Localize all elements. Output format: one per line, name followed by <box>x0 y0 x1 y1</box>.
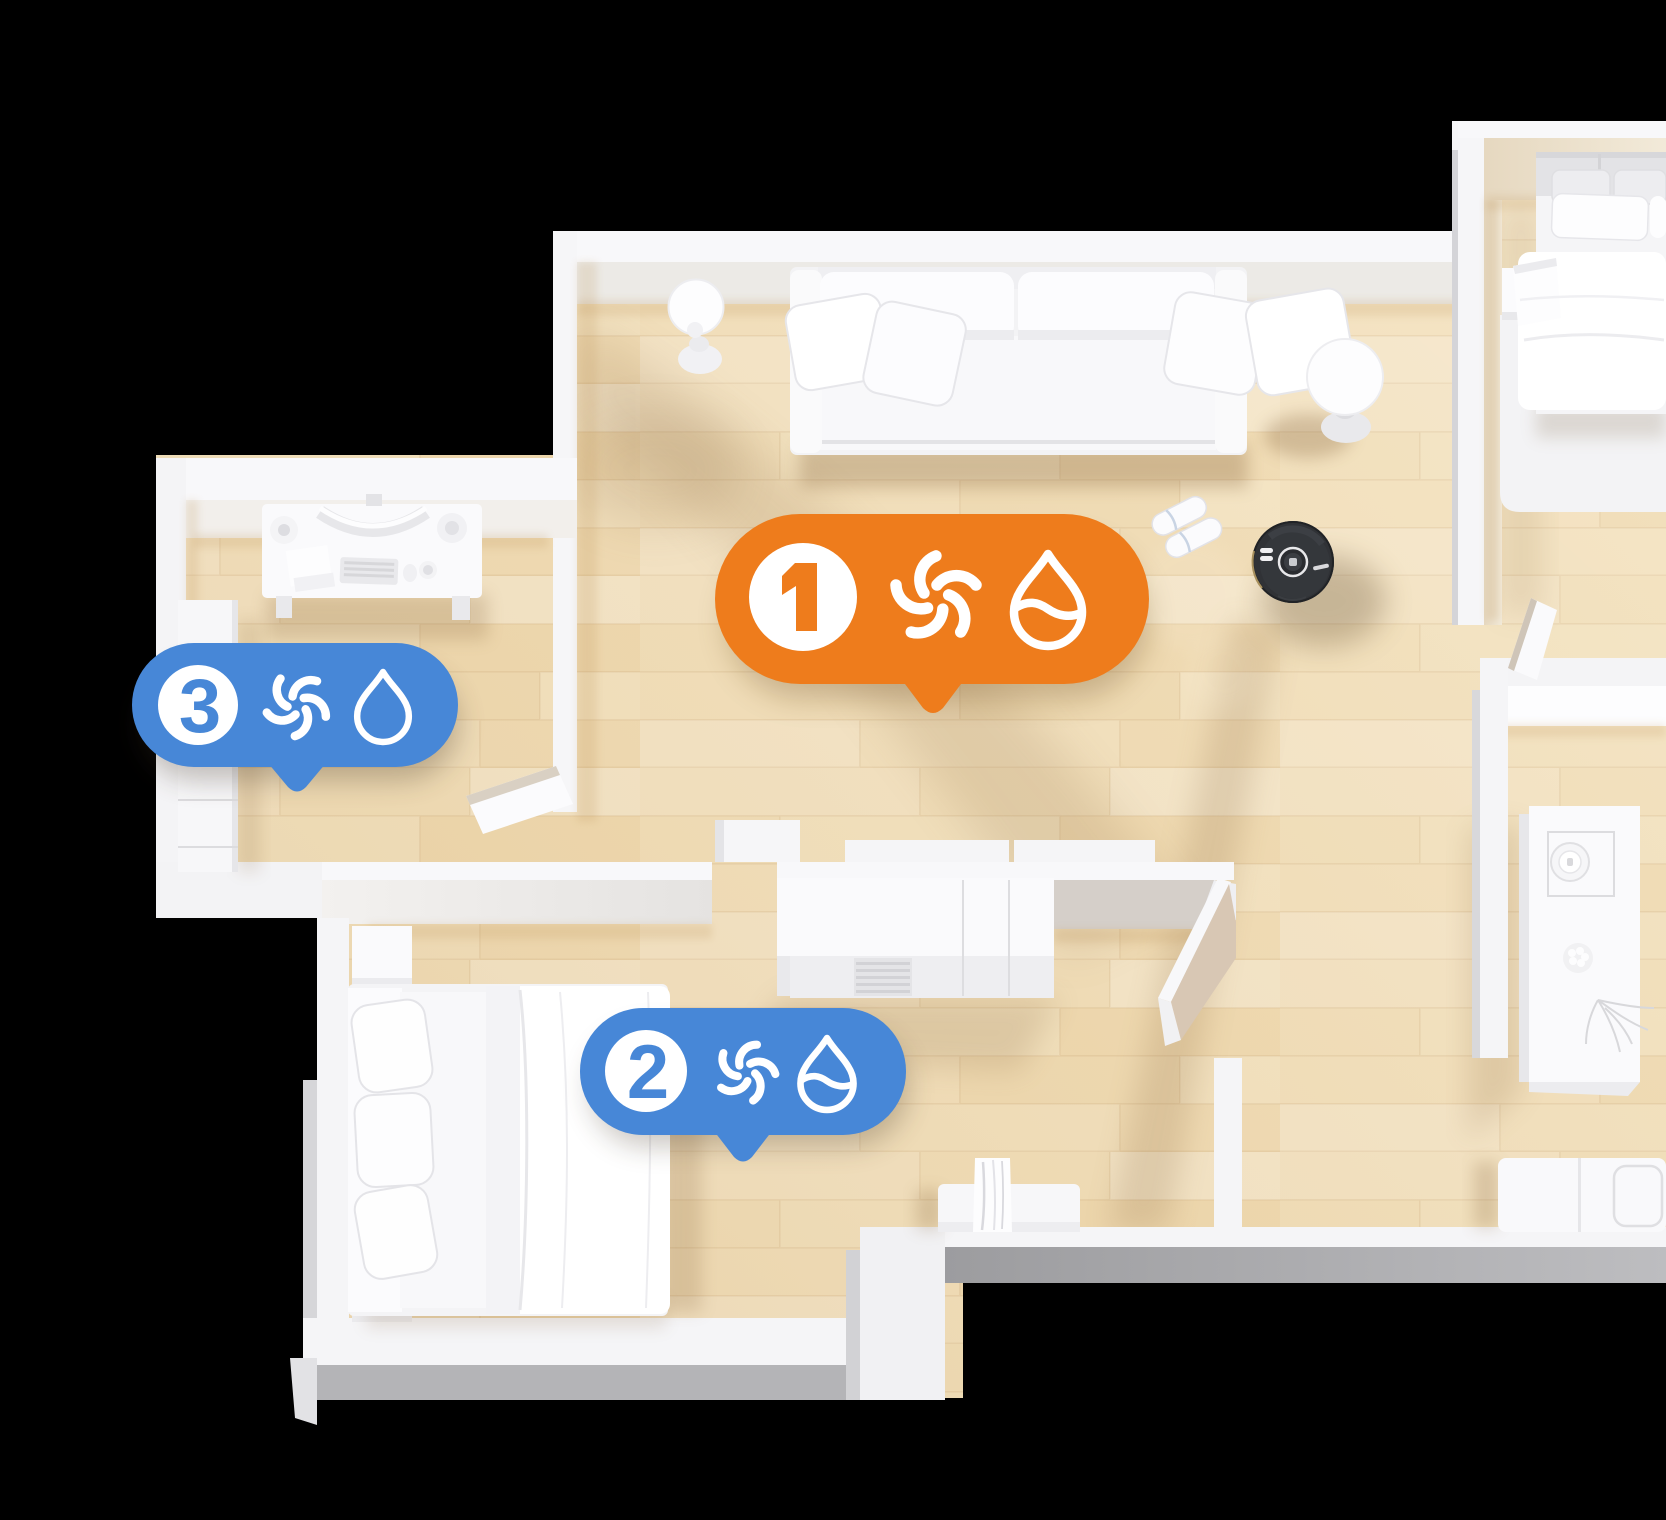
svg-text:3: 3 <box>179 664 221 749</box>
svg-text:2: 2 <box>627 1030 669 1115</box>
